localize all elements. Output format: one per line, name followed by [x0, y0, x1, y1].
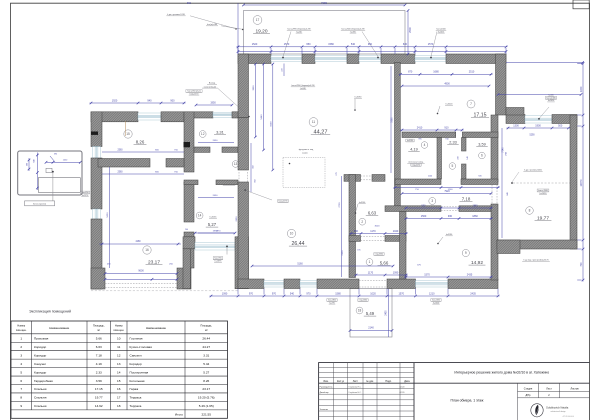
svg-text:5: 5	[452, 164, 454, 168]
svg-text:1: 1	[369, 260, 371, 264]
svg-text:+375 29 000-00-00: +375 29 000-00-00	[562, 416, 574, 418]
svg-text:1680: 1680	[433, 71, 439, 74]
svg-text:1580: 1580	[328, 43, 334, 46]
svg-text:5.44: 5.44	[203, 362, 209, 366]
svg-text:380: 380	[27, 163, 29, 166]
svg-text:900: 900	[170, 99, 175, 102]
svg-text:12: 12	[117, 353, 121, 357]
svg-text:Руководитель: Руководитель	[320, 386, 333, 388]
svg-text:Номер: Номер	[115, 325, 123, 328]
svg-text:1210: 1210	[429, 292, 435, 295]
svg-text:Заказчик: Заказчик	[320, 409, 328, 411]
svg-text:Санузел: Санузел	[130, 353, 142, 357]
svg-text:Стадия: Стадия	[524, 387, 533, 390]
svg-text:5: 5	[20, 370, 22, 374]
svg-text:2500: 2500	[409, 27, 412, 33]
svg-text:1580: 1580	[335, 292, 341, 295]
svg-text:№ док.: № док.	[366, 380, 374, 383]
svg-text:2.33: 2.33	[96, 370, 102, 374]
svg-text:5,27: 5,27	[208, 222, 217, 227]
svg-text:4.19: 4.19	[96, 362, 102, 366]
svg-text:2435: 2435	[467, 273, 473, 276]
svg-text:410: 410	[253, 165, 255, 168]
svg-text:1150: 1150	[580, 86, 583, 92]
svg-text:15: 15	[126, 132, 130, 136]
svg-text:17: 17	[256, 18, 260, 22]
svg-text:1170: 1170	[368, 271, 374, 274]
svg-text:15: 15	[117, 379, 121, 383]
svg-text:пом-щен.: пом-щен.	[113, 329, 124, 332]
svg-text:17.15: 17.15	[95, 387, 103, 391]
svg-text:540: 540	[290, 292, 295, 295]
svg-text:10970: 10970	[580, 179, 583, 187]
svg-text:6.63: 6.63	[96, 345, 102, 349]
svg-text:200: 200	[458, 156, 460, 159]
svg-text:Кухня-столовая: Кухня-столовая	[130, 345, 153, 349]
svg-text:10: 10	[290, 232, 294, 236]
svg-text:650: 650	[306, 43, 311, 46]
svg-text:16: 16	[117, 387, 121, 391]
svg-text:1520: 1520	[252, 43, 258, 46]
svg-text:Кол.уч: Кол.уч	[337, 380, 345, 383]
svg-text:Коридор: Коридор	[34, 345, 46, 349]
svg-text:Спальня: Спальня	[34, 396, 47, 400]
svg-text:Гостиная: Гостиная	[130, 337, 143, 341]
svg-text:5.27: 5.27	[203, 370, 209, 374]
svg-text:950: 950	[255, 179, 257, 182]
svg-text:Голубкова Н.С.: Голубкова Н.С.	[349, 386, 362, 388]
svg-text:2140: 2140	[368, 326, 374, 329]
svg-text:Гардеробная: Гардеробная	[34, 379, 53, 383]
svg-text:Наименование: Наименование	[146, 326, 166, 330]
svg-text:1970: 1970	[213, 231, 219, 233]
svg-text:540: 540	[354, 230, 359, 233]
svg-text:Экспликация помещений: Экспликация помещений	[29, 310, 71, 314]
svg-text:930: 930	[448, 215, 453, 218]
svg-text:3: 3	[431, 199, 433, 203]
svg-text:Площадь,: Площадь,	[200, 325, 212, 328]
svg-text:4180: 4180	[135, 241, 141, 243]
svg-text:1020: 1020	[370, 292, 376, 295]
svg-text:1560: 1560	[421, 215, 427, 218]
svg-text:18: 18	[358, 309, 362, 313]
svg-text:2450: 2450	[213, 140, 219, 142]
svg-text:3000: 3000	[375, 226, 381, 228]
svg-text:14.92: 14.92	[95, 404, 103, 408]
svg-text:пом-щен.: пом-щен.	[16, 329, 27, 332]
svg-text:12: 12	[201, 132, 205, 136]
svg-text:фундамент под: фундамент под	[299, 148, 314, 151]
svg-text:960: 960	[187, 2, 192, 5]
svg-text:Лист: Лист	[546, 387, 552, 390]
svg-text:Терраса: Терраса	[130, 396, 142, 400]
svg-text:5860: 5860	[392, 117, 394, 123]
svg-text:h до бар. пристройки=3170: h до бар. пристройки=3170	[523, 259, 549, 262]
svg-text:камин: камин	[302, 152, 308, 154]
svg-text:ДПр: ДПр	[526, 394, 531, 397]
svg-text:840: 840	[34, 159, 36, 162]
svg-text:1920: 1920	[112, 99, 118, 102]
svg-text:Golubkovich Natalia: Golubkovich Natalia	[546, 407, 569, 410]
svg-text:7680: 7680	[321, 1, 327, 5]
svg-text:930: 930	[421, 204, 426, 207]
svg-text:14: 14	[117, 370, 121, 374]
svg-text:4: 4	[20, 362, 22, 366]
svg-text:Интерьерное решение жилого дом: Интерьерное решение жилого дома №02/10 в…	[454, 370, 549, 374]
svg-text:960: 960	[368, 43, 373, 46]
svg-text:5160: 5160	[297, 262, 303, 265]
svg-text:Площадь,: Площадь,	[93, 325, 105, 328]
svg-text:970: 970	[272, 292, 277, 295]
svg-text:5,49: 5,49	[366, 311, 375, 316]
svg-text:195: 195	[357, 250, 360, 252]
svg-text:02.20: 02.20	[400, 392, 405, 394]
svg-text:1860: 1860	[472, 205, 478, 207]
svg-text:5,66: 5,66	[380, 261, 389, 266]
svg-text:5.66: 5.66	[96, 337, 102, 341]
svg-text:1300: 1300	[513, 124, 519, 127]
svg-text:2,33: 2,33	[449, 141, 456, 145]
svg-text:8: 8	[529, 209, 531, 213]
svg-text:7540: 7540	[503, 147, 505, 153]
svg-text:26.44: 26.44	[202, 337, 210, 341]
svg-text:2: 2	[20, 345, 22, 349]
svg-text:Голубкова Н.С.: Голубкова Н.С.	[349, 392, 362, 394]
svg-text:Спальня: Спальня	[34, 387, 47, 391]
svg-text:6,63: 6,63	[368, 211, 377, 216]
svg-text:3800: 3800	[253, 85, 255, 91]
svg-text:540: 540	[351, 43, 356, 46]
svg-text:14: 14	[198, 214, 202, 218]
svg-text:2560: 2560	[117, 172, 123, 174]
svg-text:1570: 1570	[428, 43, 434, 46]
svg-text:м²: м²	[97, 329, 100, 332]
svg-text:7: 7	[20, 387, 22, 391]
svg-text:390: 390	[54, 154, 57, 156]
svg-text:10: 10	[117, 337, 121, 341]
svg-text:Дата: Дата	[404, 380, 410, 383]
svg-text:2450: 2450	[236, 216, 238, 222]
svg-text:3,31: 3,31	[216, 130, 225, 135]
svg-text:Наименование: Наименование	[49, 326, 69, 330]
svg-text:630: 630	[403, 43, 408, 46]
svg-text:9600: 9600	[138, 269, 144, 272]
svg-text:8: 8	[20, 396, 22, 400]
svg-text:2510: 2510	[469, 71, 475, 74]
svg-text:970: 970	[249, 292, 254, 295]
svg-text:2450: 2450	[213, 195, 219, 197]
svg-text:Подп.: Подп.	[385, 380, 392, 383]
svg-text:6: 6	[481, 154, 483, 158]
svg-text:Гараж: Гараж	[130, 387, 140, 391]
svg-text:2560: 2560	[117, 150, 123, 152]
svg-text:6: 6	[20, 379, 22, 383]
svg-text:5.49 (1.65): 5.49 (1.65)	[199, 404, 214, 408]
svg-text:02.20: 02.20	[400, 386, 405, 388]
svg-text:18: 18	[117, 404, 121, 408]
svg-text:Коридор: Коридор	[130, 362, 142, 366]
svg-text:7920: 7920	[444, 190, 450, 193]
svg-text:220: 220	[282, 68, 284, 71]
svg-text:Блок коробки: Блок коробки	[33, 204, 47, 206]
svg-text:19.77: 19.77	[95, 396, 103, 400]
svg-text:4: 4	[424, 143, 426, 147]
svg-text:840: 840	[507, 192, 509, 195]
svg-text:1570: 1570	[398, 292, 404, 295]
svg-text:2410: 2410	[417, 126, 423, 129]
svg-text:870: 870	[408, 71, 413, 74]
svg-text:Лист: Лист	[353, 380, 359, 383]
svg-text:8.26: 8.26	[203, 379, 209, 383]
svg-text:940: 940	[147, 99, 152, 102]
svg-text:Изм.: Изм.	[323, 380, 328, 383]
svg-text:7.18: 7.18	[96, 353, 102, 357]
svg-text:11: 11	[312, 120, 316, 124]
svg-text:Листов: Листов	[570, 387, 579, 390]
svg-text:Санузел: Санузел	[34, 362, 46, 366]
svg-text:Котельная: Котельная	[130, 379, 145, 383]
svg-text:13: 13	[117, 362, 121, 366]
svg-text:7,18: 7,18	[462, 197, 471, 202]
svg-text:6590: 6590	[270, 121, 272, 127]
svg-text:Коридор: Коридор	[34, 370, 46, 374]
svg-text:1570: 1570	[284, 43, 290, 46]
svg-text:3: 3	[20, 353, 22, 357]
svg-text:500: 500	[558, 124, 563, 127]
svg-text:2: 2	[361, 220, 363, 224]
svg-text:1090: 1090	[222, 292, 228, 295]
svg-text:5440: 5440	[261, 114, 263, 120]
svg-text:11: 11	[117, 345, 120, 349]
svg-text:Коридор: Коридор	[34, 353, 46, 357]
svg-text:2435: 2435	[470, 292, 476, 295]
svg-text:7: 7	[470, 102, 472, 106]
svg-text:Постирочная: Постирочная	[130, 370, 149, 374]
svg-text:1740: 1740	[505, 152, 507, 156]
svg-text:3.59: 3.59	[96, 379, 102, 383]
svg-text:17: 17	[117, 396, 121, 400]
svg-text:44.27: 44.27	[202, 345, 210, 349]
svg-text:1900: 1900	[535, 124, 541, 127]
svg-text:1170: 1170	[370, 230, 376, 233]
svg-text:2130: 2130	[342, 250, 344, 256]
svg-text:Спальня: Спальня	[34, 404, 47, 408]
svg-text:23.17: 23.17	[202, 387, 210, 391]
svg-text:13: 13	[234, 162, 238, 166]
svg-text:Прихожая: Прихожая	[34, 337, 49, 341]
svg-text:700: 700	[580, 262, 583, 267]
svg-text:8,26: 8,26	[136, 140, 145, 145]
svg-text:1860: 1860	[472, 215, 478, 218]
svg-text:1040: 1040	[393, 230, 399, 233]
svg-text:1570: 1570	[424, 273, 430, 276]
svg-text:9: 9	[20, 404, 22, 408]
svg-text:4,19: 4,19	[410, 148, 417, 152]
svg-text:270: 270	[336, 172, 338, 175]
svg-text:Дизайнер: Дизайнер	[320, 391, 330, 394]
svg-text:9: 9	[465, 251, 467, 255]
svg-text:2450: 2450	[386, 310, 388, 316]
svg-text:1090: 1090	[393, 271, 399, 274]
svg-text:1950: 1950	[210, 102, 216, 105]
svg-text:3,59: 3,59	[478, 143, 485, 147]
svg-text:970: 970	[306, 292, 311, 295]
svg-text:16: 16	[145, 248, 149, 252]
svg-text:Итого: Итого	[175, 413, 183, 417]
svg-text:240: 240	[185, 229, 188, 231]
svg-text:3.31: 3.31	[203, 353, 209, 357]
svg-text:Терраса: Терраса	[130, 404, 142, 408]
svg-text:5290: 5290	[529, 135, 535, 137]
svg-text:2730: 2730	[339, 202, 341, 208]
svg-text:1: 1	[20, 337, 22, 341]
svg-text:140: 140	[467, 156, 469, 159]
svg-text:19.20 (5.76): 19.20 (5.76)	[198, 396, 215, 400]
svg-text:Номер: Номер	[17, 325, 25, 328]
svg-text:м²: м²	[205, 329, 208, 332]
svg-text:5650: 5650	[107, 212, 109, 218]
svg-text:910: 910	[444, 126, 449, 129]
svg-text:221.55: 221.55	[202, 413, 212, 417]
svg-text:4900: 4900	[444, 82, 450, 85]
svg-text:План обмера. 1 этаж: План обмера. 1 этаж	[451, 398, 485, 402]
